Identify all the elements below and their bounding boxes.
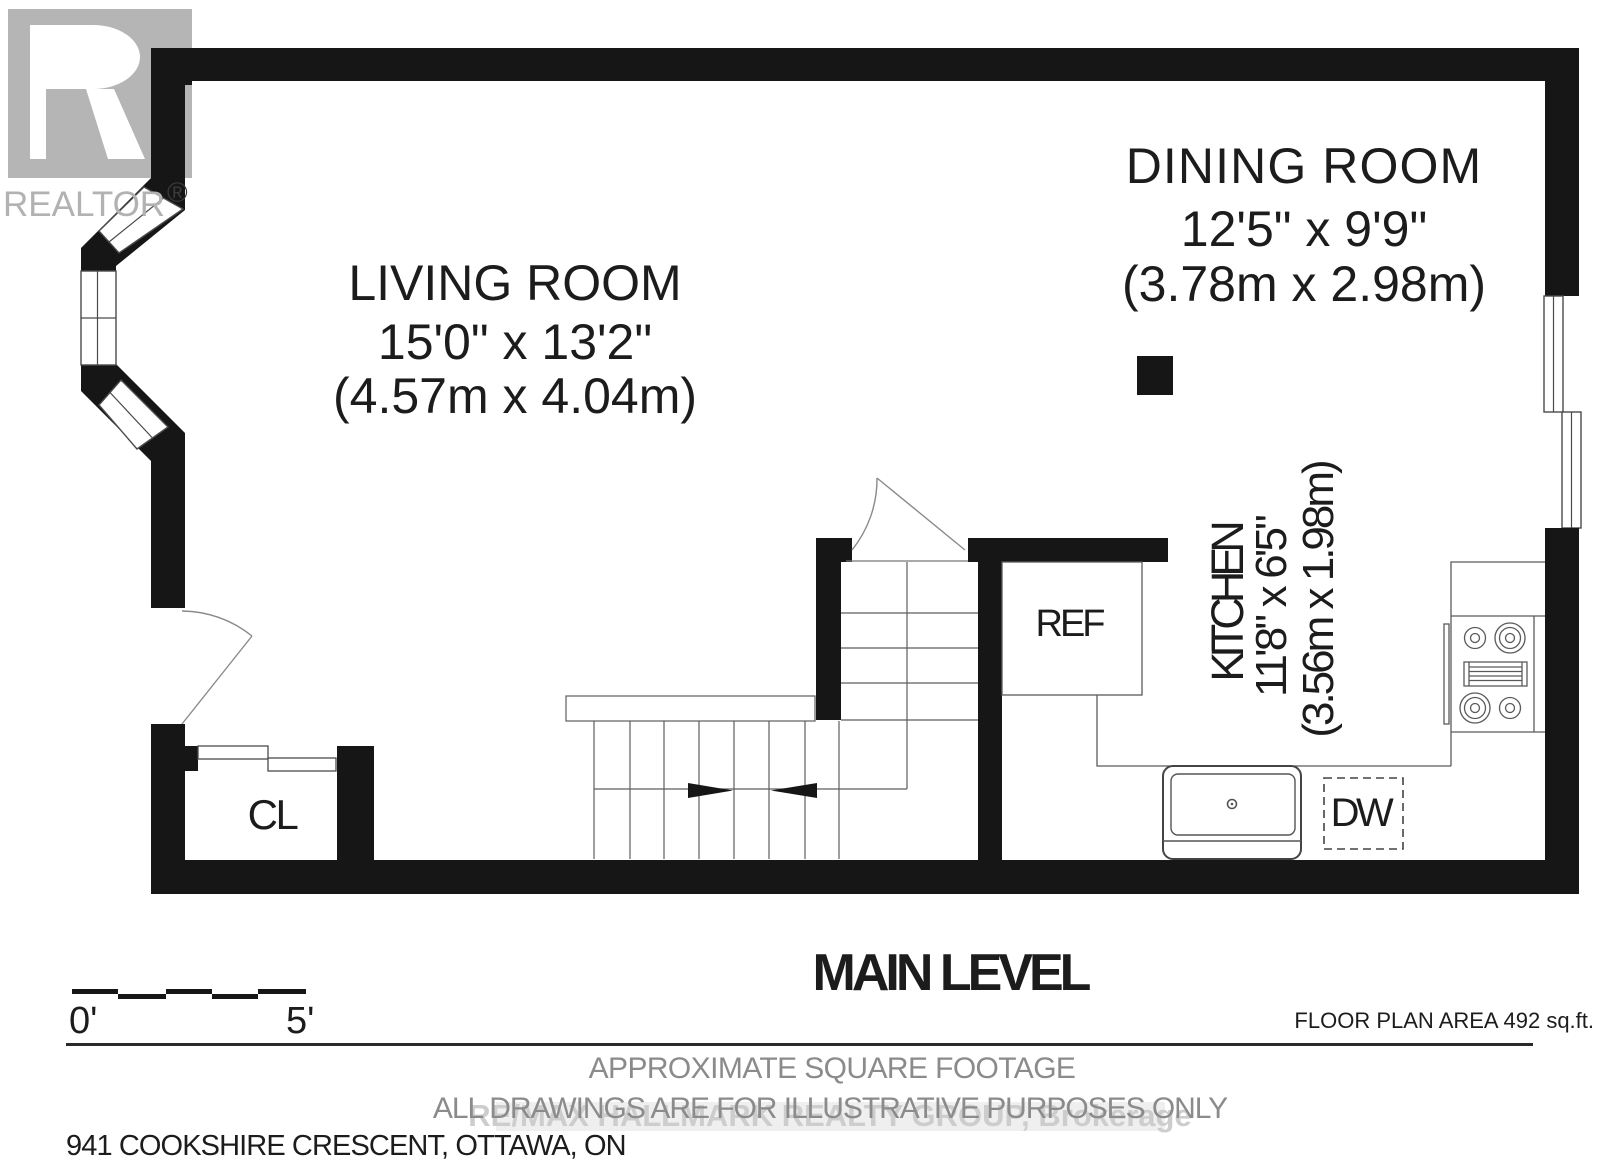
svg-text:11'8" x 6'5": 11'8" x 6'5" (1247, 516, 1296, 697)
svg-text:15'0" x 13'2": 15'0" x 13'2" (378, 314, 652, 370)
svg-text:APPROXIMATE SQUARE FOOTAGE: APPROXIMATE SQUARE FOOTAGE (589, 1052, 1076, 1085)
svg-text:ALL DRAWINGS ARE FOR ILLUSTRAT: ALL DRAWINGS ARE FOR ILLUSTRATIVE PURPOS… (433, 1092, 1228, 1125)
svg-text:DINING ROOM: DINING ROOM (1126, 138, 1483, 194)
svg-text:REALTOR: REALTOR (3, 185, 165, 224)
svg-text:0': 0' (69, 1000, 97, 1042)
svg-text:(4.57m x 4.04m): (4.57m x 4.04m) (333, 368, 697, 424)
svg-text:CL: CL (248, 791, 298, 838)
svg-text:5': 5' (286, 1000, 314, 1042)
svg-text:(3.78m x 2.98m): (3.78m x 2.98m) (1122, 256, 1486, 312)
svg-text:LIVING ROOM: LIVING ROOM (348, 255, 681, 311)
svg-text:941 COOKSHIRE CRESCENT, OTTAWA: 941 COOKSHIRE CRESCENT, OTTAWA, ON (66, 1130, 626, 1161)
svg-text:(3.56m x 1.98m): (3.56m x 1.98m) (1294, 462, 1343, 738)
svg-text:12'5" x 9'9": 12'5" x 9'9" (1181, 201, 1427, 257)
svg-text:®: ® (167, 177, 188, 208)
svg-text:KITCHEN: KITCHEN (1202, 524, 1253, 682)
svg-text:FLOOR PLAN AREA 492 sq.ft.: FLOOR PLAN AREA 492 sq.ft. (1294, 1008, 1594, 1033)
svg-text:REF: REF (1036, 603, 1105, 645)
svg-text:DW: DW (1331, 791, 1394, 835)
svg-text:MAIN LEVEL: MAIN LEVEL (813, 944, 1091, 1002)
